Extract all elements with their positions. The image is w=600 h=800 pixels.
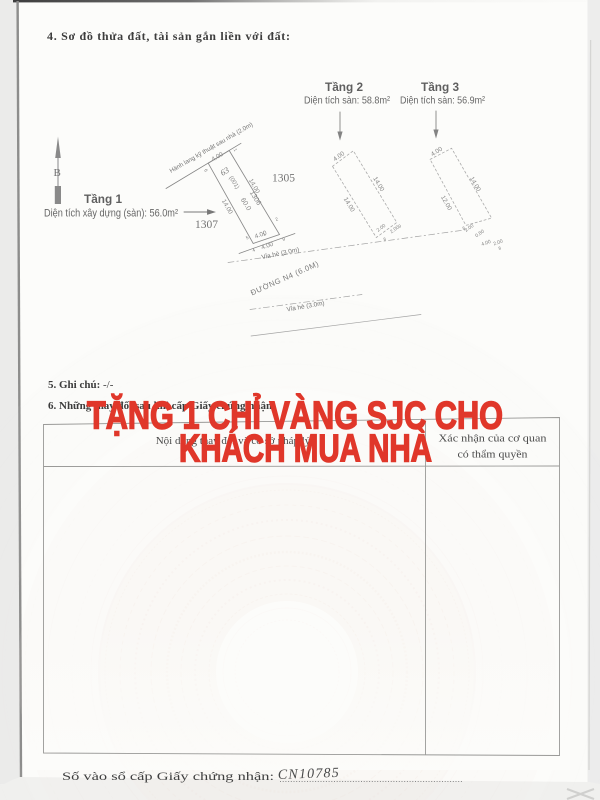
svg-text:Tầng 1: Tầng 1	[84, 192, 122, 206]
svg-text:Tầng 2: Tầng 2	[325, 80, 363, 94]
svg-text:B: B	[54, 167, 61, 179]
svg-text:CN10785: CN10785	[278, 766, 341, 783]
svg-text:Diện tích sàn: 56.9m²: Diện tích sàn: 56.9m²	[400, 96, 486, 107]
svg-text:1307: 1307	[195, 219, 218, 231]
svg-text:5. Ghi chú: -/-: 5. Ghi chú: -/-	[48, 379, 114, 391]
svg-text:1305: 1305	[272, 173, 295, 185]
svg-text:Diện tích xây dựng (sàn): 56.0: Diện tích xây dựng (sàn): 56.0m²	[44, 208, 178, 220]
svg-text:có thẩm quyền: có thẩm quyền	[458, 449, 529, 461]
svg-text:Diện tích sàn: 58.8m²: Diện tích sàn: 58.8m²	[304, 96, 391, 107]
svg-text:KHÁCH MUA NHÀ: KHÁCH MUA NHÀ	[179, 427, 432, 471]
svg-text:Tầng 3: Tầng 3	[421, 80, 459, 94]
svg-text:4. Sơ đồ thửa đất, tài sản gắn: 4. Sơ đồ thửa đất, tài sản gắn liền với …	[47, 29, 290, 43]
svg-text:Số vào sổ cấp Giấy chứng nhận:: Số vào sổ cấp Giấy chứng nhận:	[62, 769, 274, 783]
